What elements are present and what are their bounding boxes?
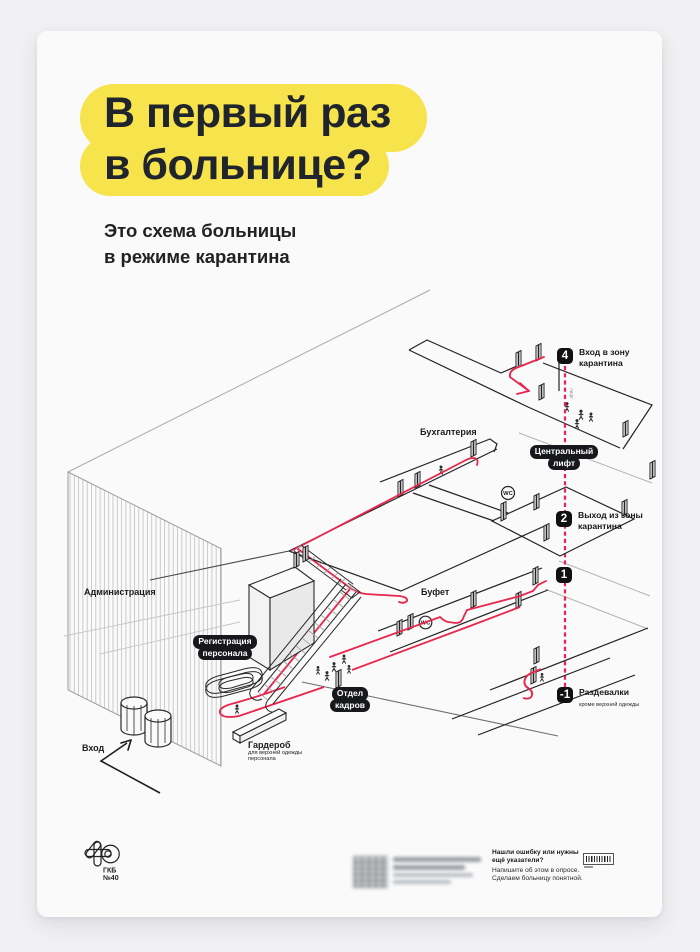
svg-text:лифт: лифт [569, 388, 574, 400]
svg-text:WC: WC [503, 491, 513, 497]
svg-text:ГКБ: ГКБ [103, 868, 116, 875]
svg-text:№40: №40 [103, 874, 119, 882]
